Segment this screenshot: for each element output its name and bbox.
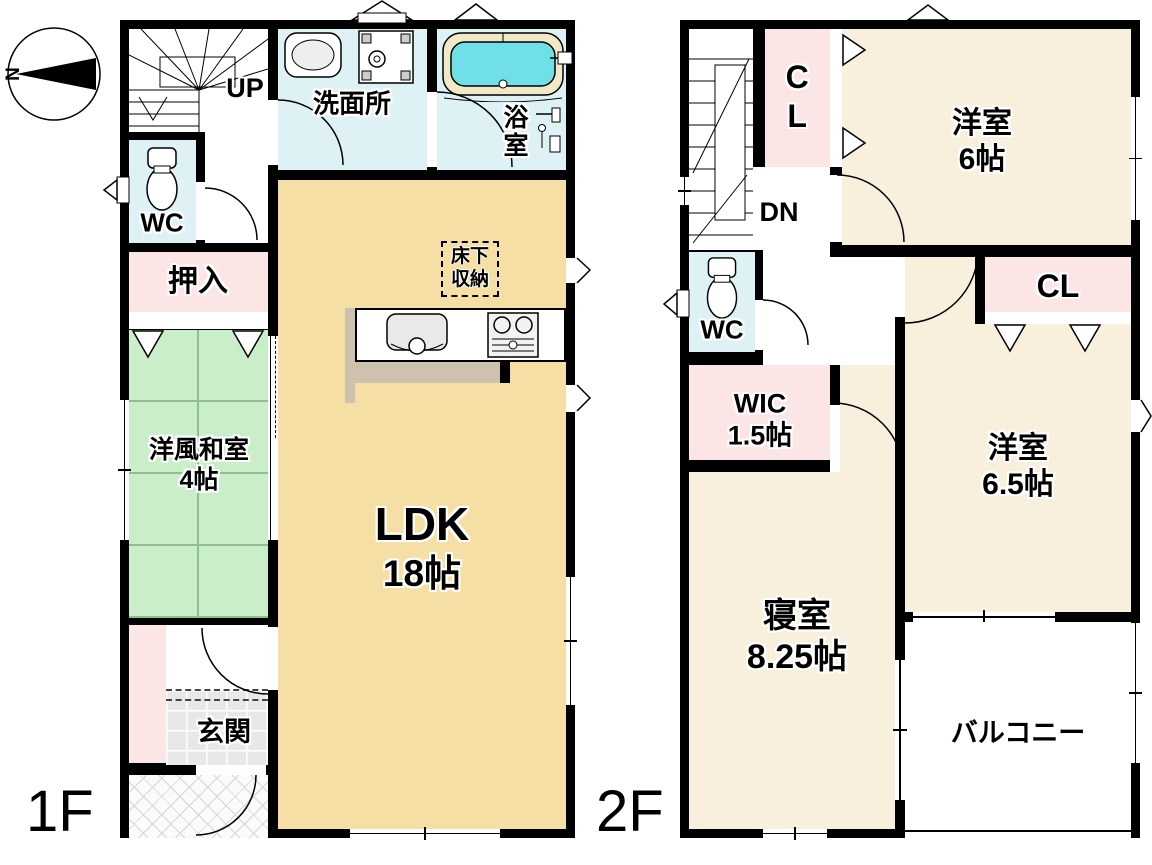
underfloor-storage-box: 床下 収納 bbox=[441, 241, 499, 297]
kitchen-sink-icon bbox=[385, 312, 449, 358]
roof-vent-icon bbox=[455, 4, 497, 20]
wic-size: 1.5帖 bbox=[728, 421, 793, 451]
washitsu-sliding-door bbox=[268, 336, 278, 540]
stove-icon bbox=[487, 312, 539, 358]
floorplan-canvas: N 1F 2F bbox=[0, 0, 1152, 865]
wall-vent-icon bbox=[104, 180, 117, 200]
yoshitsu65-vent-gap bbox=[1131, 400, 1140, 432]
shoe-closet bbox=[129, 625, 166, 763]
yoshitsu65-door-gap bbox=[895, 257, 905, 317]
yoshitsu6-name: 洋室 bbox=[952, 107, 1012, 140]
yoshitsu65-label: 洋室 6.5帖 bbox=[982, 431, 1054, 503]
washitsu-name: 洋風和室 bbox=[149, 436, 249, 464]
compass-north-label: N bbox=[4, 67, 24, 81]
yoshitsu65-name: 洋室 bbox=[988, 432, 1048, 465]
washitsu-window bbox=[120, 400, 129, 540]
wc-vent-gap-1f bbox=[120, 179, 129, 203]
floor2-title: 2F bbox=[596, 778, 664, 845]
yoshitsu6-door-gap bbox=[830, 175, 842, 242]
washitsu-label: 洋風和室 4帖 bbox=[149, 435, 249, 495]
yoshitsu6-size: 6帖 bbox=[959, 143, 1006, 176]
ldk-name: LDK bbox=[375, 498, 470, 550]
ldk-vent-gap-1 bbox=[566, 258, 575, 283]
shinshitsu-south-window bbox=[763, 829, 827, 838]
balcony-edge-line bbox=[905, 830, 1131, 832]
yoshitsu6-east-window bbox=[1131, 97, 1140, 220]
cl-north-door-band bbox=[830, 29, 842, 167]
balcony-east-window bbox=[1131, 623, 1140, 763]
balcony-label: バルコニー bbox=[951, 717, 1085, 749]
wc-door-gap-1f bbox=[196, 182, 205, 240]
hall-passage-gap bbox=[763, 245, 830, 257]
floor1-plan: 床下 収納 bbox=[120, 20, 575, 838]
hall-1f-upper bbox=[205, 132, 268, 243]
shinshitsu-size: 8.25帖 bbox=[747, 638, 847, 676]
toilet-icon bbox=[702, 256, 742, 320]
washitsu-size: 4帖 bbox=[180, 466, 219, 494]
shinshitsu-room bbox=[840, 365, 895, 829]
wc-vent-gap-2f bbox=[680, 290, 689, 317]
yoshitsu6-label: 洋室 6帖 bbox=[952, 106, 1012, 178]
floor2-plan: DN CL 洋室 6帖 WC WIC 1.5帖 CL 洋室 6.5帖 寝室 8.… bbox=[680, 20, 1140, 838]
wic-door-gap bbox=[830, 405, 840, 473]
roof-vent-icon bbox=[908, 5, 948, 20]
wc-label-2f: WC bbox=[700, 314, 743, 345]
roof-vent-icon bbox=[352, 1, 412, 20]
genkan-step-line bbox=[166, 689, 268, 691]
wic-label: WIC 1.5帖 bbox=[728, 388, 793, 453]
yoshitsu65-size: 6.5帖 bbox=[982, 468, 1054, 501]
bath-door-gap bbox=[427, 92, 437, 167]
stairs-2f bbox=[689, 29, 753, 250]
shinshitsu-name: 寝室 bbox=[763, 597, 831, 635]
yoshitsu65-room bbox=[905, 257, 975, 324]
ldk-size: 18帖 bbox=[383, 553, 461, 594]
entrance-porch bbox=[129, 775, 268, 838]
yoshitsu65-south-window bbox=[913, 612, 1055, 622]
ldk-east-window bbox=[566, 577, 575, 705]
underfloor-storage-label: 床下 bbox=[451, 246, 489, 267]
washing-machine-icon bbox=[358, 30, 414, 84]
wall-vent-icon bbox=[577, 258, 590, 283]
compass-icon: N bbox=[4, 20, 108, 126]
cl-north-label: CL bbox=[778, 59, 816, 137]
stairs-up-label: UP bbox=[226, 72, 264, 104]
entry-hall bbox=[166, 625, 268, 690]
washbasin-icon bbox=[284, 32, 342, 78]
senmenjo-label: 洗面所 bbox=[313, 88, 391, 119]
genkan-step-line bbox=[166, 699, 268, 701]
front-door-gap bbox=[196, 765, 266, 775]
shinshitsu-label: 寝室 8.25帖 bbox=[747, 596, 847, 678]
ldk-vent-gap-2 bbox=[566, 385, 575, 412]
underfloor-storage-label: 収納 bbox=[451, 269, 489, 290]
cl-east-door-band bbox=[985, 312, 1131, 324]
bathtub-icon bbox=[442, 32, 564, 102]
stairs-icon bbox=[689, 29, 753, 250]
ldk-label: LDK 18帖 bbox=[375, 497, 470, 597]
shinshitsu-balcony-window bbox=[895, 660, 905, 800]
stairs-window-2f bbox=[680, 177, 689, 205]
wic-name: WIC bbox=[734, 389, 786, 419]
hall-ldk-door-gap bbox=[268, 627, 278, 690]
cl-east-label: CL bbox=[1037, 267, 1080, 305]
shower-icon bbox=[532, 106, 562, 156]
wall-vent-icon bbox=[664, 293, 677, 315]
wc-label-1f: WC bbox=[140, 207, 183, 238]
yokushitsu-label: 浴室 bbox=[499, 104, 529, 160]
oshiire-door-band bbox=[129, 312, 268, 330]
oshiire-label: 押入 bbox=[168, 264, 228, 300]
wall-vent-icon bbox=[1141, 400, 1151, 432]
wall-stub bbox=[500, 362, 510, 383]
kitchen-counter-shadow bbox=[345, 362, 500, 383]
stairs-down-label: DN bbox=[760, 196, 799, 228]
senmenjo-door-gap bbox=[268, 100, 278, 165]
ldk-south-window bbox=[350, 829, 500, 838]
hall-2f bbox=[763, 257, 895, 365]
genkan-label: 玄関 bbox=[197, 716, 251, 748]
floor1-title: 1F bbox=[26, 778, 94, 845]
toilet-icon bbox=[142, 146, 182, 212]
kitchen-counter-shadow bbox=[345, 308, 355, 403]
wall-vent-icon bbox=[577, 385, 590, 411]
